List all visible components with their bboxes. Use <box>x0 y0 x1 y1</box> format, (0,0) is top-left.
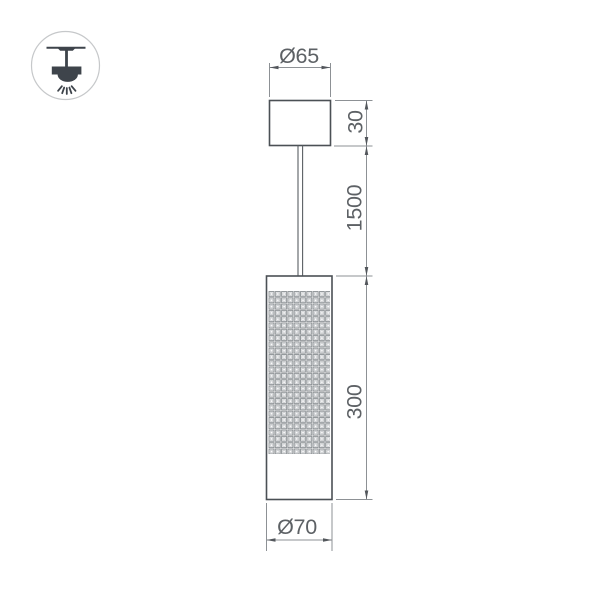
dim-canopy-height-label: 30 <box>344 110 368 134</box>
ceiling-pendant-light-icon <box>32 32 100 100</box>
canopy-outline <box>270 101 331 146</box>
pendant-lamp-technical-drawing: Ø65 30 1500 300 Ø7 <box>0 0 600 600</box>
perforated-grid <box>269 291 331 454</box>
dim-cable-length-label: 1500 <box>343 184 367 231</box>
drawing-canvas: Ø65 30 1500 300 Ø7 <box>0 0 600 600</box>
dim-chain-right: 30 1500 300 <box>334 101 373 500</box>
icon-stem <box>65 50 68 67</box>
dim-body-diameter-label: Ø70 <box>277 515 317 539</box>
dim-body-diameter: Ø70 <box>267 503 333 551</box>
dim-body-height-label: 300 <box>343 384 367 419</box>
lamp-outline <box>267 101 333 500</box>
dim-canopy-diameter-label: Ø65 <box>279 44 319 68</box>
icon-lamp-housing <box>52 67 82 75</box>
dim-canopy-diameter: Ø65 <box>270 44 331 97</box>
